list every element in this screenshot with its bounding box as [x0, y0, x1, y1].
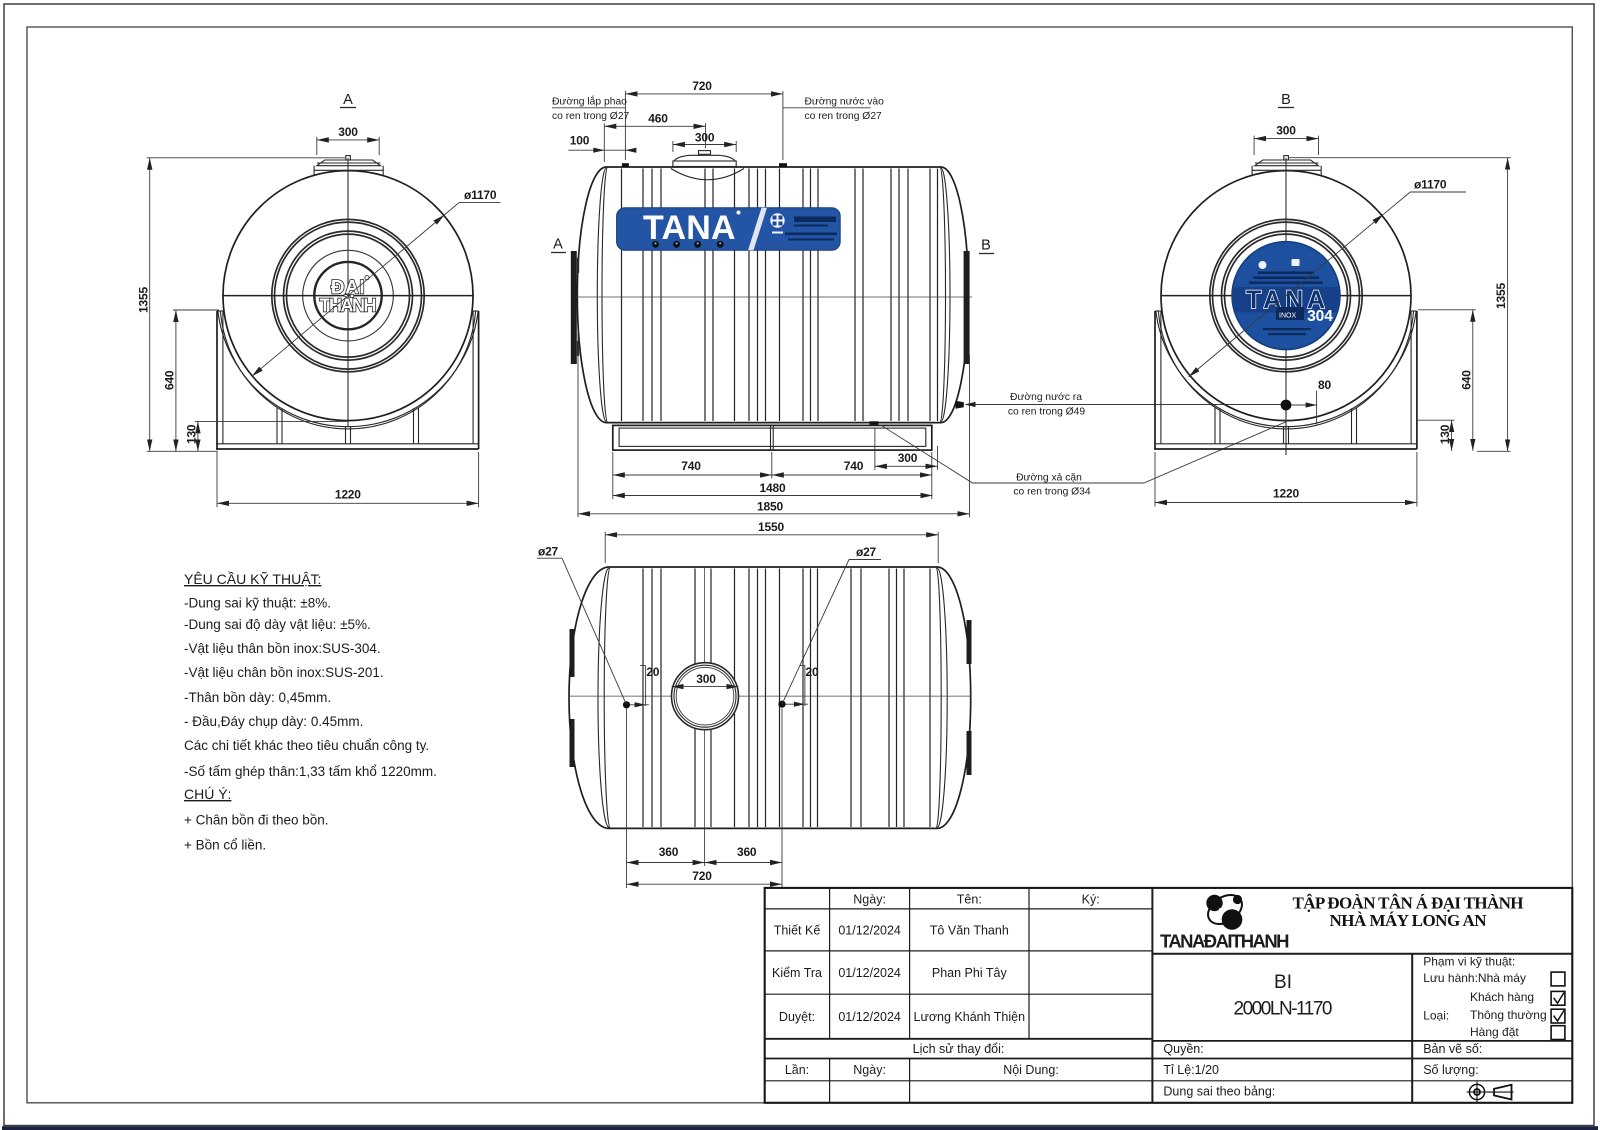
- svg-text:Ký:: Ký:: [1082, 892, 1100, 906]
- svg-text:304: 304: [1307, 308, 1333, 325]
- svg-text:TẬP ĐOÀN TÂN Á ĐẠI THÀNH: TẬP ĐOÀN TÂN Á ĐẠI THÀNH: [1293, 894, 1524, 913]
- svg-text:460: 460: [648, 112, 668, 126]
- svg-text:1220: 1220: [335, 488, 361, 502]
- svg-text:1355: 1355: [136, 287, 150, 313]
- svg-text:01/12/2024: 01/12/2024: [838, 923, 901, 937]
- svg-text:Loại:: Loại:: [1423, 1008, 1449, 1022]
- svg-text:Lần:: Lần:: [785, 1063, 809, 1077]
- svg-text:NHÀ MÁY LONG AN: NHÀ MÁY LONG AN: [1330, 911, 1488, 930]
- svg-text:Thiết Kế: Thiết Kế: [774, 923, 821, 937]
- svg-text:130: 130: [1438, 424, 1452, 444]
- svg-text:20: 20: [646, 665, 659, 679]
- svg-text:Nội Dung:: Nội Dung:: [1003, 1063, 1059, 1077]
- svg-text:B: B: [981, 238, 991, 254]
- svg-text:720: 720: [692, 79, 712, 93]
- svg-text:-Vật liệu thân bồn inox:SUS-30: -Vật liệu thân bồn inox:SUS-304.: [184, 641, 381, 656]
- svg-text:-Vật liệu chân bồn inox:SUS-20: -Vật liệu chân bồn inox:SUS-201.: [184, 665, 384, 680]
- svg-text:Đường nước vào: Đường nước vào: [805, 97, 885, 108]
- svg-text:1550: 1550: [758, 520, 784, 534]
- svg-text:Bản vẽ số:: Bản vẽ số:: [1423, 1042, 1482, 1056]
- svg-text:+ Chân bồn đi theo bồn.: + Chân bồn đi theo bồn.: [184, 813, 329, 828]
- svg-text:Quyền:: Quyền:: [1163, 1042, 1203, 1056]
- svg-text:CHÚ Ý:: CHÚ Ý:: [184, 786, 231, 802]
- svg-text:1220: 1220: [1273, 487, 1299, 501]
- svg-text:Các chi tiết khác theo tiêu ch: Các chi tiết khác theo tiêu chuẩn công t…: [184, 738, 429, 753]
- svg-text:co ren trong Ø27: co ren trong Ø27: [552, 111, 630, 122]
- svg-text:A: A: [553, 237, 563, 253]
- svg-text:80: 80: [1318, 378, 1331, 392]
- svg-text:Phan Phi Tây: Phan Phi Tây: [932, 966, 1008, 980]
- svg-text:Lương Khánh Thiện: Lương Khánh Thiện: [914, 1010, 1026, 1024]
- svg-text:ø27: ø27: [538, 545, 559, 559]
- svg-text:1850: 1850: [757, 499, 783, 513]
- svg-text:Ngày:: Ngày:: [853, 892, 886, 906]
- svg-text:2000LN-1170: 2000LN-1170: [1234, 999, 1333, 1020]
- svg-text:640: 640: [162, 370, 176, 390]
- svg-text:-Thân bồn dày: 0,45mm.: -Thân bồn dày: 0,45mm.: [184, 690, 331, 705]
- svg-text:Ngày:: Ngày:: [853, 1063, 886, 1077]
- svg-text:Lịch sử thay đổi:: Lịch sử thay đổi:: [913, 1042, 1005, 1056]
- svg-text:- Đầu,Đáy chụp dày: 0.45mm.: - Đầu,Đáy chụp dày: 0.45mm.: [184, 714, 363, 729]
- svg-text:ø27: ø27: [856, 545, 877, 559]
- svg-text:300: 300: [1276, 124, 1296, 138]
- svg-text:B: B: [1281, 92, 1291, 108]
- svg-text:Kiểm Tra: Kiểm Tra: [772, 966, 822, 980]
- svg-text:co ren trong Ø27: co ren trong Ø27: [805, 111, 883, 122]
- svg-text:740: 740: [681, 459, 701, 473]
- svg-text:720: 720: [692, 869, 712, 883]
- svg-text:Phạm vi kỹ thuật:: Phạm vi kỹ thuật:: [1423, 955, 1515, 969]
- svg-text:Thông thường: Thông thường: [1470, 1008, 1547, 1022]
- svg-text:360: 360: [659, 845, 679, 859]
- svg-text:ø1170: ø1170: [1414, 178, 1447, 192]
- svg-text:01/12/2024: 01/12/2024: [838, 1010, 901, 1024]
- svg-text:Lưu hành:Nhà máy: Lưu hành:Nhà máy: [1423, 971, 1526, 985]
- svg-text:YÊU CẦU KỸ THUẬT:: YÊU CẦU KỸ THUẬT:: [184, 571, 321, 587]
- svg-text:300: 300: [695, 131, 715, 145]
- svg-text:-Dung sai kỹ thuật: ±8%.: -Dung sai kỹ thuật: ±8%.: [184, 596, 331, 611]
- svg-text:01/12/2024: 01/12/2024: [838, 966, 901, 980]
- svg-text:Hàng đặt: Hàng đặt: [1470, 1025, 1519, 1039]
- svg-text:ø1170: ø1170: [464, 188, 497, 202]
- svg-text:Khách hàng: Khách hàng: [1470, 990, 1534, 1004]
- svg-text:A: A: [343, 92, 353, 108]
- svg-text:co ren trong Ø34: co ren trong Ø34: [1013, 486, 1091, 497]
- svg-text:-Số tấm ghép thân:1,33 tấm khổ: -Số tấm ghép thân:1,33 tấm khổ 1220mm.: [184, 764, 437, 779]
- svg-text:Tỉ Lệ:1/20: Tỉ Lệ:1/20: [1163, 1063, 1219, 1077]
- svg-text:300: 300: [338, 125, 358, 139]
- svg-text:TANAĐAITHANH: TANAĐAITHANH: [1160, 931, 1289, 952]
- svg-text:Đường xả cặn: Đường xả cặn: [1016, 472, 1082, 483]
- svg-text:130: 130: [184, 424, 198, 444]
- svg-text:+ Bồn cổ liền.: + Bồn cổ liền.: [184, 838, 266, 853]
- svg-text:Đường lắp phao: Đường lắp phao: [552, 95, 627, 108]
- svg-text:20: 20: [806, 665, 819, 679]
- svg-text:Tên:: Tên:: [957, 892, 982, 906]
- svg-text:300: 300: [898, 451, 918, 465]
- svg-text:300: 300: [696, 672, 716, 686]
- svg-text:Số lượng:: Số lượng:: [1423, 1063, 1478, 1077]
- svg-text:100: 100: [570, 134, 590, 148]
- svg-text:-Dung sai độ dày vật liệu: ±5%: -Dung sai độ dày vật liệu: ±5%.: [184, 617, 371, 632]
- svg-text:360: 360: [737, 845, 757, 859]
- svg-text:740: 740: [844, 459, 864, 473]
- svg-text:Dung sai theo bảng:: Dung sai theo bảng:: [1163, 1085, 1275, 1099]
- svg-text:Đường nước ra: Đường nước ra: [1010, 392, 1082, 403]
- svg-text:1480: 1480: [760, 481, 786, 495]
- svg-text:Duyệt:: Duyệt:: [779, 1010, 815, 1024]
- svg-text:640: 640: [1459, 370, 1473, 390]
- svg-text:Tô Văn Thanh: Tô Văn Thanh: [930, 923, 1009, 937]
- svg-text:1355: 1355: [1494, 283, 1508, 309]
- svg-text:co ren trong Ø49: co ren trong Ø49: [1008, 406, 1086, 417]
- svg-text:INOX: INOX: [1279, 313, 1296, 320]
- svg-text:BI: BI: [1274, 972, 1292, 993]
